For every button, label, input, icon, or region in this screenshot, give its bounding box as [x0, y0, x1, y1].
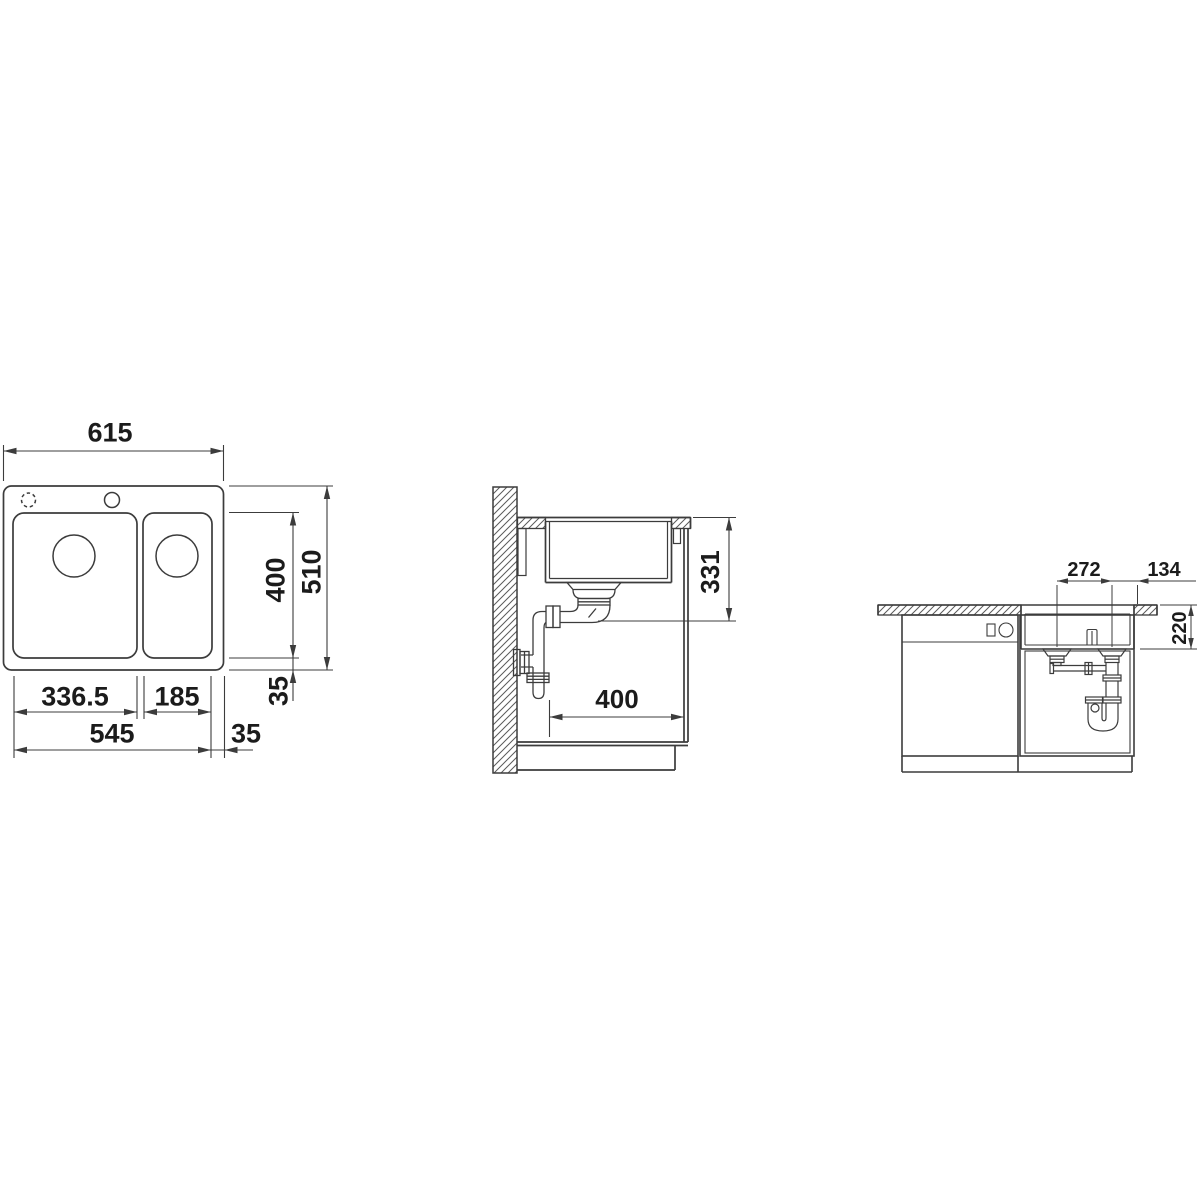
half-bowl-drain: [156, 535, 198, 577]
side-view-waste-assembly: [514, 583, 622, 699]
pipe-end-cap: [533, 692, 544, 699]
bowl-section-walls: [546, 522, 672, 583]
dim-bowls-width-label: 545: [89, 721, 134, 748]
trap-union-ring-a: [546, 606, 553, 628]
sink-front-box: [1021, 605, 1134, 649]
dim-outlet-depth-label: 331: [697, 550, 723, 593]
dim-rim-bottom-label: 35: [231, 721, 261, 748]
sink-cabinet-door: [1025, 651, 1130, 753]
cabinet-plinth: [517, 746, 675, 771]
tap-hole-optional: [22, 493, 36, 507]
strainer-flange: [567, 583, 621, 590]
dim-overall-depth-label: 510: [299, 549, 326, 594]
cabinet-vent-detail: [987, 624, 995, 636]
dim-half-bowl-width-label: 185: [154, 684, 199, 711]
dim-cabinet-clearance-label: 400: [595, 686, 638, 712]
wall-outlet-pipe: [521, 655, 533, 667]
front-mounting-rail: [674, 529, 681, 544]
rear-mounting-rail: [518, 529, 526, 576]
dim-drain-spacing-label: 272: [1067, 560, 1100, 580]
counter-front-left: [878, 605, 1021, 615]
adjacent-cabinet: [902, 615, 1018, 756]
sink-rim-line: [546, 522, 672, 579]
bowl-divider-front: [1087, 630, 1097, 646]
sink-installation-drawing: [0, 0, 1200, 1200]
front-view-waste-assembly: [1043, 649, 1126, 731]
side-view-drawing: [493, 487, 736, 773]
front-strainer-right: [1098, 649, 1126, 656]
technical-drawing-sheet: 615 400 510 35 336.5 185 545 35 331 400 …: [0, 0, 1200, 1200]
wall-hatch: [493, 487, 517, 773]
main-bowl-drain: [53, 535, 95, 577]
front-view-drawing: [878, 578, 1197, 772]
plinth-lines: [902, 756, 1132, 772]
front-trap-u-bend: [1088, 703, 1118, 731]
trap-arm-elbow: [560, 605, 610, 623]
sink-front-inner: [1025, 614, 1130, 645]
dim-rim-side-label: 35: [266, 676, 293, 706]
counter-right-section: [672, 518, 691, 529]
front-vertical-pipe: [1106, 663, 1118, 715]
dim-overall-width-label: 615: [87, 420, 132, 447]
trap-cleanout: [1091, 704, 1099, 712]
connecting-pipe: [1053, 666, 1106, 672]
front-strainer-left: [1043, 649, 1071, 656]
strainer-dome: [573, 590, 615, 599]
sink-cabinet: [1020, 615, 1134, 756]
dim-bowl-depth-label: 400: [263, 557, 290, 602]
dim-bowl-height-label: 220: [1170, 611, 1190, 644]
cabinet-right-wall: [684, 529, 688, 743]
connecting-pipe-cap: [1050, 664, 1054, 674]
dim-drain-to-edge-label: 134: [1147, 560, 1180, 580]
cabinet-knob-detail: [999, 623, 1013, 637]
trap-union-ring-b: [553, 606, 560, 628]
side-view-dimension-arrows: [550, 518, 733, 721]
counter-left-section: [518, 518, 546, 529]
counter-front-right: [1134, 605, 1157, 615]
cabinet-bottom: [517, 742, 688, 746]
dim-main-bowl-width-label: 336.5: [41, 684, 109, 711]
tap-hole: [105, 493, 120, 508]
pipe-union-ring-c: [527, 673, 549, 683]
trap-down-elbow: [533, 612, 546, 629]
